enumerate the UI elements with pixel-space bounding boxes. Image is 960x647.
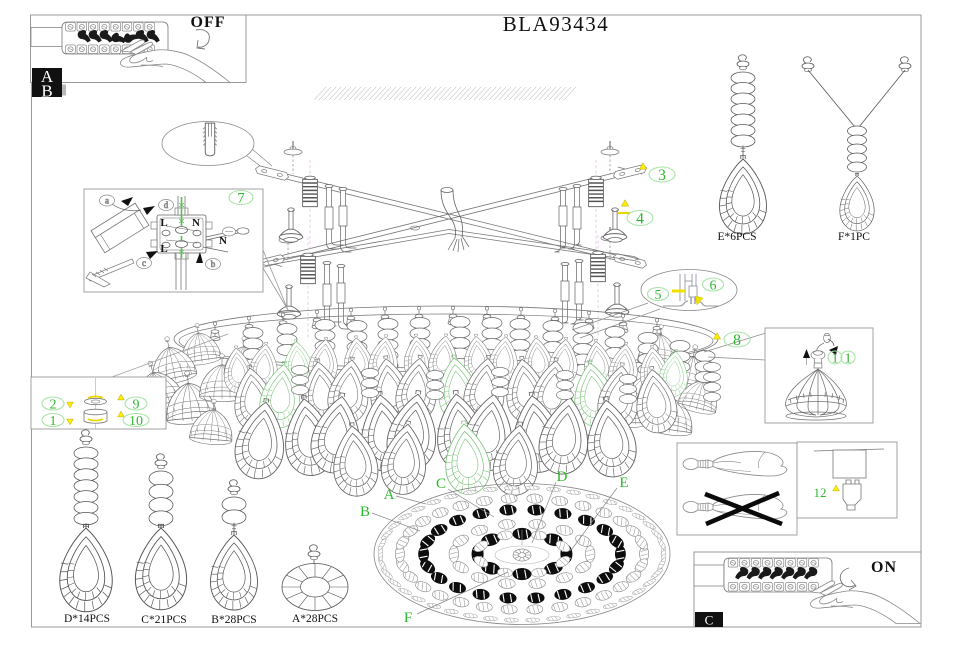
svg-text:8: 8 — [733, 332, 741, 349]
svg-text:10: 10 — [129, 414, 143, 429]
svg-text:BLA93434: BLA93434 — [503, 12, 610, 36]
svg-text:C: C — [705, 613, 714, 628]
svg-text:F: F — [404, 610, 412, 626]
svg-text:b: b — [211, 259, 216, 269]
svg-text:7: 7 — [237, 191, 245, 207]
svg-text:9: 9 — [133, 397, 140, 412]
svg-text:D: D — [557, 469, 568, 485]
svg-text:B: B — [360, 504, 370, 520]
svg-text:E*6PCS: E*6PCS — [718, 231, 757, 243]
svg-text:a: a — [105, 196, 109, 206]
svg-text:1: 1 — [50, 414, 57, 429]
svg-text:D*14PCS: D*14PCS — [64, 613, 110, 625]
svg-text:c: c — [142, 258, 146, 268]
svg-text:F*1PC: F*1PC — [838, 231, 870, 243]
svg-text:C: C — [436, 476, 446, 492]
svg-text:1: 1 — [832, 351, 839, 366]
svg-text:4: 4 — [636, 210, 644, 227]
svg-text:5: 5 — [655, 288, 662, 303]
svg-text:C*21PCS: C*21PCS — [141, 614, 186, 626]
svg-text:d: d — [164, 200, 169, 210]
svg-text:1: 1 — [845, 351, 852, 366]
svg-text:B: B — [41, 82, 52, 101]
svg-text:2: 2 — [50, 397, 57, 412]
svg-text:6: 6 — [710, 278, 717, 293]
svg-text:B*28PCS: B*28PCS — [211, 614, 256, 626]
svg-text:L: L — [160, 243, 167, 255]
svg-text:A: A — [384, 487, 395, 503]
svg-text:OFF: OFF — [191, 14, 226, 31]
svg-text:E: E — [619, 475, 628, 491]
svg-text:3: 3 — [658, 167, 666, 184]
svg-text:L: L — [160, 217, 167, 229]
svg-text:A*28PCS: A*28PCS — [292, 613, 338, 625]
svg-text:N: N — [219, 235, 227, 247]
svg-text:N: N — [192, 217, 200, 229]
svg-text:ON: ON — [871, 559, 897, 576]
svg-text:12: 12 — [814, 485, 827, 500]
